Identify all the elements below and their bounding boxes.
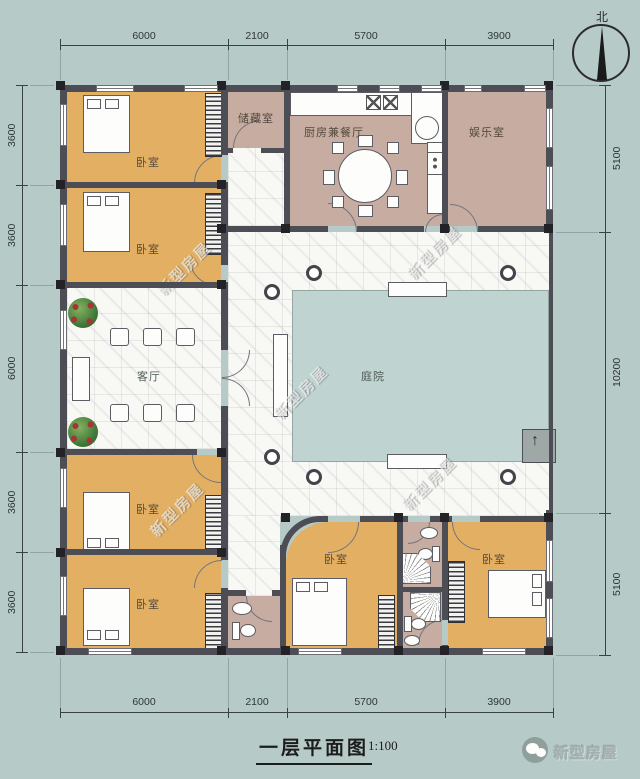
drawing-scale: 1:100 (368, 738, 398, 754)
window (464, 85, 482, 92)
window (60, 310, 67, 350)
pillow (105, 196, 119, 206)
wall-segment (442, 85, 448, 232)
column (56, 81, 65, 90)
window (298, 648, 342, 655)
wall-segment (221, 85, 228, 155)
wall-segment (261, 148, 290, 153)
window (546, 598, 553, 638)
pillow (105, 538, 119, 548)
porch-pillar (500, 469, 516, 485)
wall-segment (221, 588, 228, 655)
dining-chair (332, 142, 344, 154)
pillow (87, 196, 101, 206)
wall-segment (60, 85, 67, 655)
hall-bottom (228, 516, 280, 596)
wall-segment (397, 587, 448, 592)
dim-extension-line (30, 85, 54, 86)
sideboard (72, 357, 90, 401)
dim-line-top (60, 45, 554, 46)
dim-right-10200: 10200 (610, 332, 624, 412)
closet (205, 593, 222, 651)
label-entertainment: 娱乐室 (457, 124, 517, 140)
dining-chair (387, 142, 399, 154)
dim-top-3900: 3900 (459, 29, 539, 43)
wall-segment (221, 406, 228, 452)
living-chair (176, 404, 195, 422)
window (482, 648, 526, 655)
dining-chair (358, 205, 373, 217)
dim-extension-line (30, 285, 54, 286)
page-title: 一层平面图 (256, 733, 372, 765)
dim-line-right (605, 85, 606, 655)
dim-top-6000: 6000 (104, 29, 184, 43)
pillow (87, 538, 101, 548)
wall-segment (221, 590, 246, 596)
dining-table (338, 149, 392, 203)
dining-chair (323, 170, 335, 185)
wall-segment (221, 452, 228, 560)
column (544, 224, 553, 233)
closet (205, 93, 222, 157)
column (440, 224, 449, 233)
kitchen-sink (415, 116, 439, 140)
window (96, 85, 134, 92)
dim-tick (599, 655, 611, 656)
sink (420, 527, 438, 539)
window (546, 108, 553, 148)
column (281, 513, 290, 522)
dim-extension-line (30, 652, 54, 653)
plant (68, 298, 98, 328)
entry-arrow-icon: ↑ (531, 432, 539, 450)
dim-extension-line (228, 658, 229, 708)
stove-burner-icon (366, 95, 381, 110)
column (440, 513, 449, 522)
column (281, 224, 290, 233)
wall-segment (60, 282, 228, 288)
dim-extension-line (556, 85, 598, 86)
column (217, 548, 226, 557)
dim-tick (599, 513, 611, 514)
dim-extension-line (445, 658, 446, 708)
stove-burner-icon (383, 95, 398, 110)
wall-segment (357, 226, 424, 232)
label-bedroom-1: 卧室 (118, 154, 178, 170)
column (544, 513, 553, 522)
living-chair (110, 404, 129, 422)
pillow (87, 99, 101, 109)
column (217, 448, 226, 457)
pillow (105, 99, 119, 109)
window (60, 576, 67, 616)
label-storage: 储藏室 (226, 110, 286, 126)
dim-tick (16, 652, 28, 653)
column (217, 180, 226, 189)
dim-tick (16, 452, 28, 453)
column (281, 646, 290, 655)
north-label: 北 (594, 8, 610, 25)
dim-extension-line (287, 50, 288, 80)
dim-tick (16, 552, 28, 553)
dining-chair (396, 170, 408, 185)
window (379, 85, 400, 92)
dim-left-3600-2: 3600 (5, 195, 19, 275)
toilet-bowl (240, 624, 256, 637)
column (440, 646, 449, 655)
dim-extension-line (287, 658, 288, 708)
dim-tick (599, 85, 611, 86)
label-living: 客厅 (119, 368, 179, 384)
dining-chair (332, 196, 344, 208)
dim-extension-line (30, 452, 54, 453)
hall-top (228, 148, 284, 226)
dining-chair (387, 196, 399, 208)
wall-segment (284, 85, 290, 232)
dim-line-left (22, 85, 23, 653)
wall-segment (221, 287, 228, 350)
dim-bottom-5700: 5700 (326, 695, 406, 709)
dim-left-3600-3: 3600 (5, 462, 19, 542)
column (56, 646, 65, 655)
dim-extension-line (30, 552, 54, 553)
pillow (314, 582, 328, 592)
window (184, 85, 218, 92)
label-courtyard: 庭院 (343, 368, 403, 384)
closet (378, 595, 395, 651)
window (88, 648, 132, 655)
column (394, 513, 403, 522)
label-bedroom-2: 卧室 (118, 241, 178, 257)
dim-extension-line (556, 655, 598, 656)
dim-line-bottom (60, 712, 554, 713)
porch-pillar (264, 449, 280, 465)
porch-pillar (500, 265, 516, 281)
label-bedroom-6: 卧室 (464, 551, 524, 567)
wall-segment (60, 549, 228, 555)
dim-left-3600-4: 3600 (5, 562, 19, 642)
column (56, 548, 65, 557)
dim-top-2100: 2100 (217, 29, 297, 43)
dim-extension-line (553, 50, 554, 80)
living-chair (176, 328, 195, 346)
wechat-bubble-icon (536, 748, 546, 757)
pillow (87, 630, 101, 640)
window (546, 540, 553, 582)
dim-tick (599, 232, 611, 233)
column (281, 81, 290, 90)
dim-right-5100-1: 5100 (610, 118, 624, 198)
living-chair (143, 404, 162, 422)
dim-extension-line (60, 50, 61, 80)
toilet-bowl (411, 618, 426, 630)
dim-left-3600-1: 3600 (5, 95, 19, 175)
dim-tick (16, 185, 28, 186)
wall-segment (272, 590, 286, 596)
wall-segment (318, 516, 328, 522)
dim-extension-line (30, 185, 54, 186)
porch-pillar (264, 284, 280, 300)
wall-segment (280, 545, 286, 655)
dim-extension-line (553, 658, 554, 708)
wall-segment (480, 516, 553, 522)
toilet-tank (432, 546, 440, 562)
window (60, 204, 67, 246)
wall-segment (221, 148, 233, 153)
dim-top-5700: 5700 (326, 29, 406, 43)
toilet-tank (232, 622, 240, 640)
wall-segment (221, 226, 328, 232)
dim-tick (16, 285, 28, 286)
dim-bottom-2100: 2100 (217, 695, 297, 709)
window (60, 104, 67, 146)
porch-pillar (306, 265, 322, 281)
dim-left-6000: 6000 (5, 328, 19, 408)
dim-extension-line (60, 658, 61, 708)
column (544, 646, 553, 655)
sink (404, 635, 420, 646)
column (217, 646, 226, 655)
dim-bottom-3900: 3900 (459, 695, 539, 709)
dim-extension-line (556, 513, 598, 514)
dim-tick (16, 85, 28, 86)
sink (232, 602, 252, 615)
window (421, 85, 442, 92)
pillow (532, 592, 542, 606)
living-chair (143, 328, 162, 346)
dim-extension-line (556, 232, 598, 233)
wall-segment (60, 449, 197, 455)
pillow (105, 630, 119, 640)
label-bedroom-4: 卧室 (118, 596, 178, 612)
living-chair (110, 328, 129, 346)
wall-segment (442, 522, 448, 620)
pillow (296, 582, 310, 592)
logo-text: 新型房屋 (554, 742, 618, 763)
porch-pillar (306, 469, 322, 485)
column (217, 81, 226, 90)
closet (448, 561, 465, 623)
dim-extension-line (445, 50, 446, 80)
dim-extension-line (228, 50, 229, 80)
room-entertainment (448, 92, 546, 226)
column (217, 280, 226, 289)
wall-segment (360, 516, 397, 522)
window (60, 468, 67, 508)
wall-segment (60, 182, 228, 188)
column (56, 448, 65, 457)
label-kitchen-dining: 厨房兼餐厅 (294, 124, 374, 140)
floor-plan-canvas: ↑ 卧室 卧室 卧室 卧室 卧室 卧室 储藏室 厨房兼餐厅 娱乐室 客厅 庭院 … (0, 0, 640, 779)
window (337, 85, 358, 92)
fridge (427, 152, 443, 175)
column (217, 224, 226, 233)
column (394, 646, 403, 655)
pillow (532, 574, 542, 588)
window (546, 166, 553, 210)
label-bedroom-5: 卧室 (306, 551, 366, 567)
closet (205, 495, 222, 555)
wall-segment (549, 232, 553, 510)
window (524, 85, 546, 92)
dim-bottom-6000: 6000 (104, 695, 184, 709)
wall-segment (478, 226, 553, 232)
column (56, 280, 65, 289)
column (56, 180, 65, 189)
plant (68, 417, 98, 447)
dim-right-5100-2: 5100 (610, 544, 624, 624)
